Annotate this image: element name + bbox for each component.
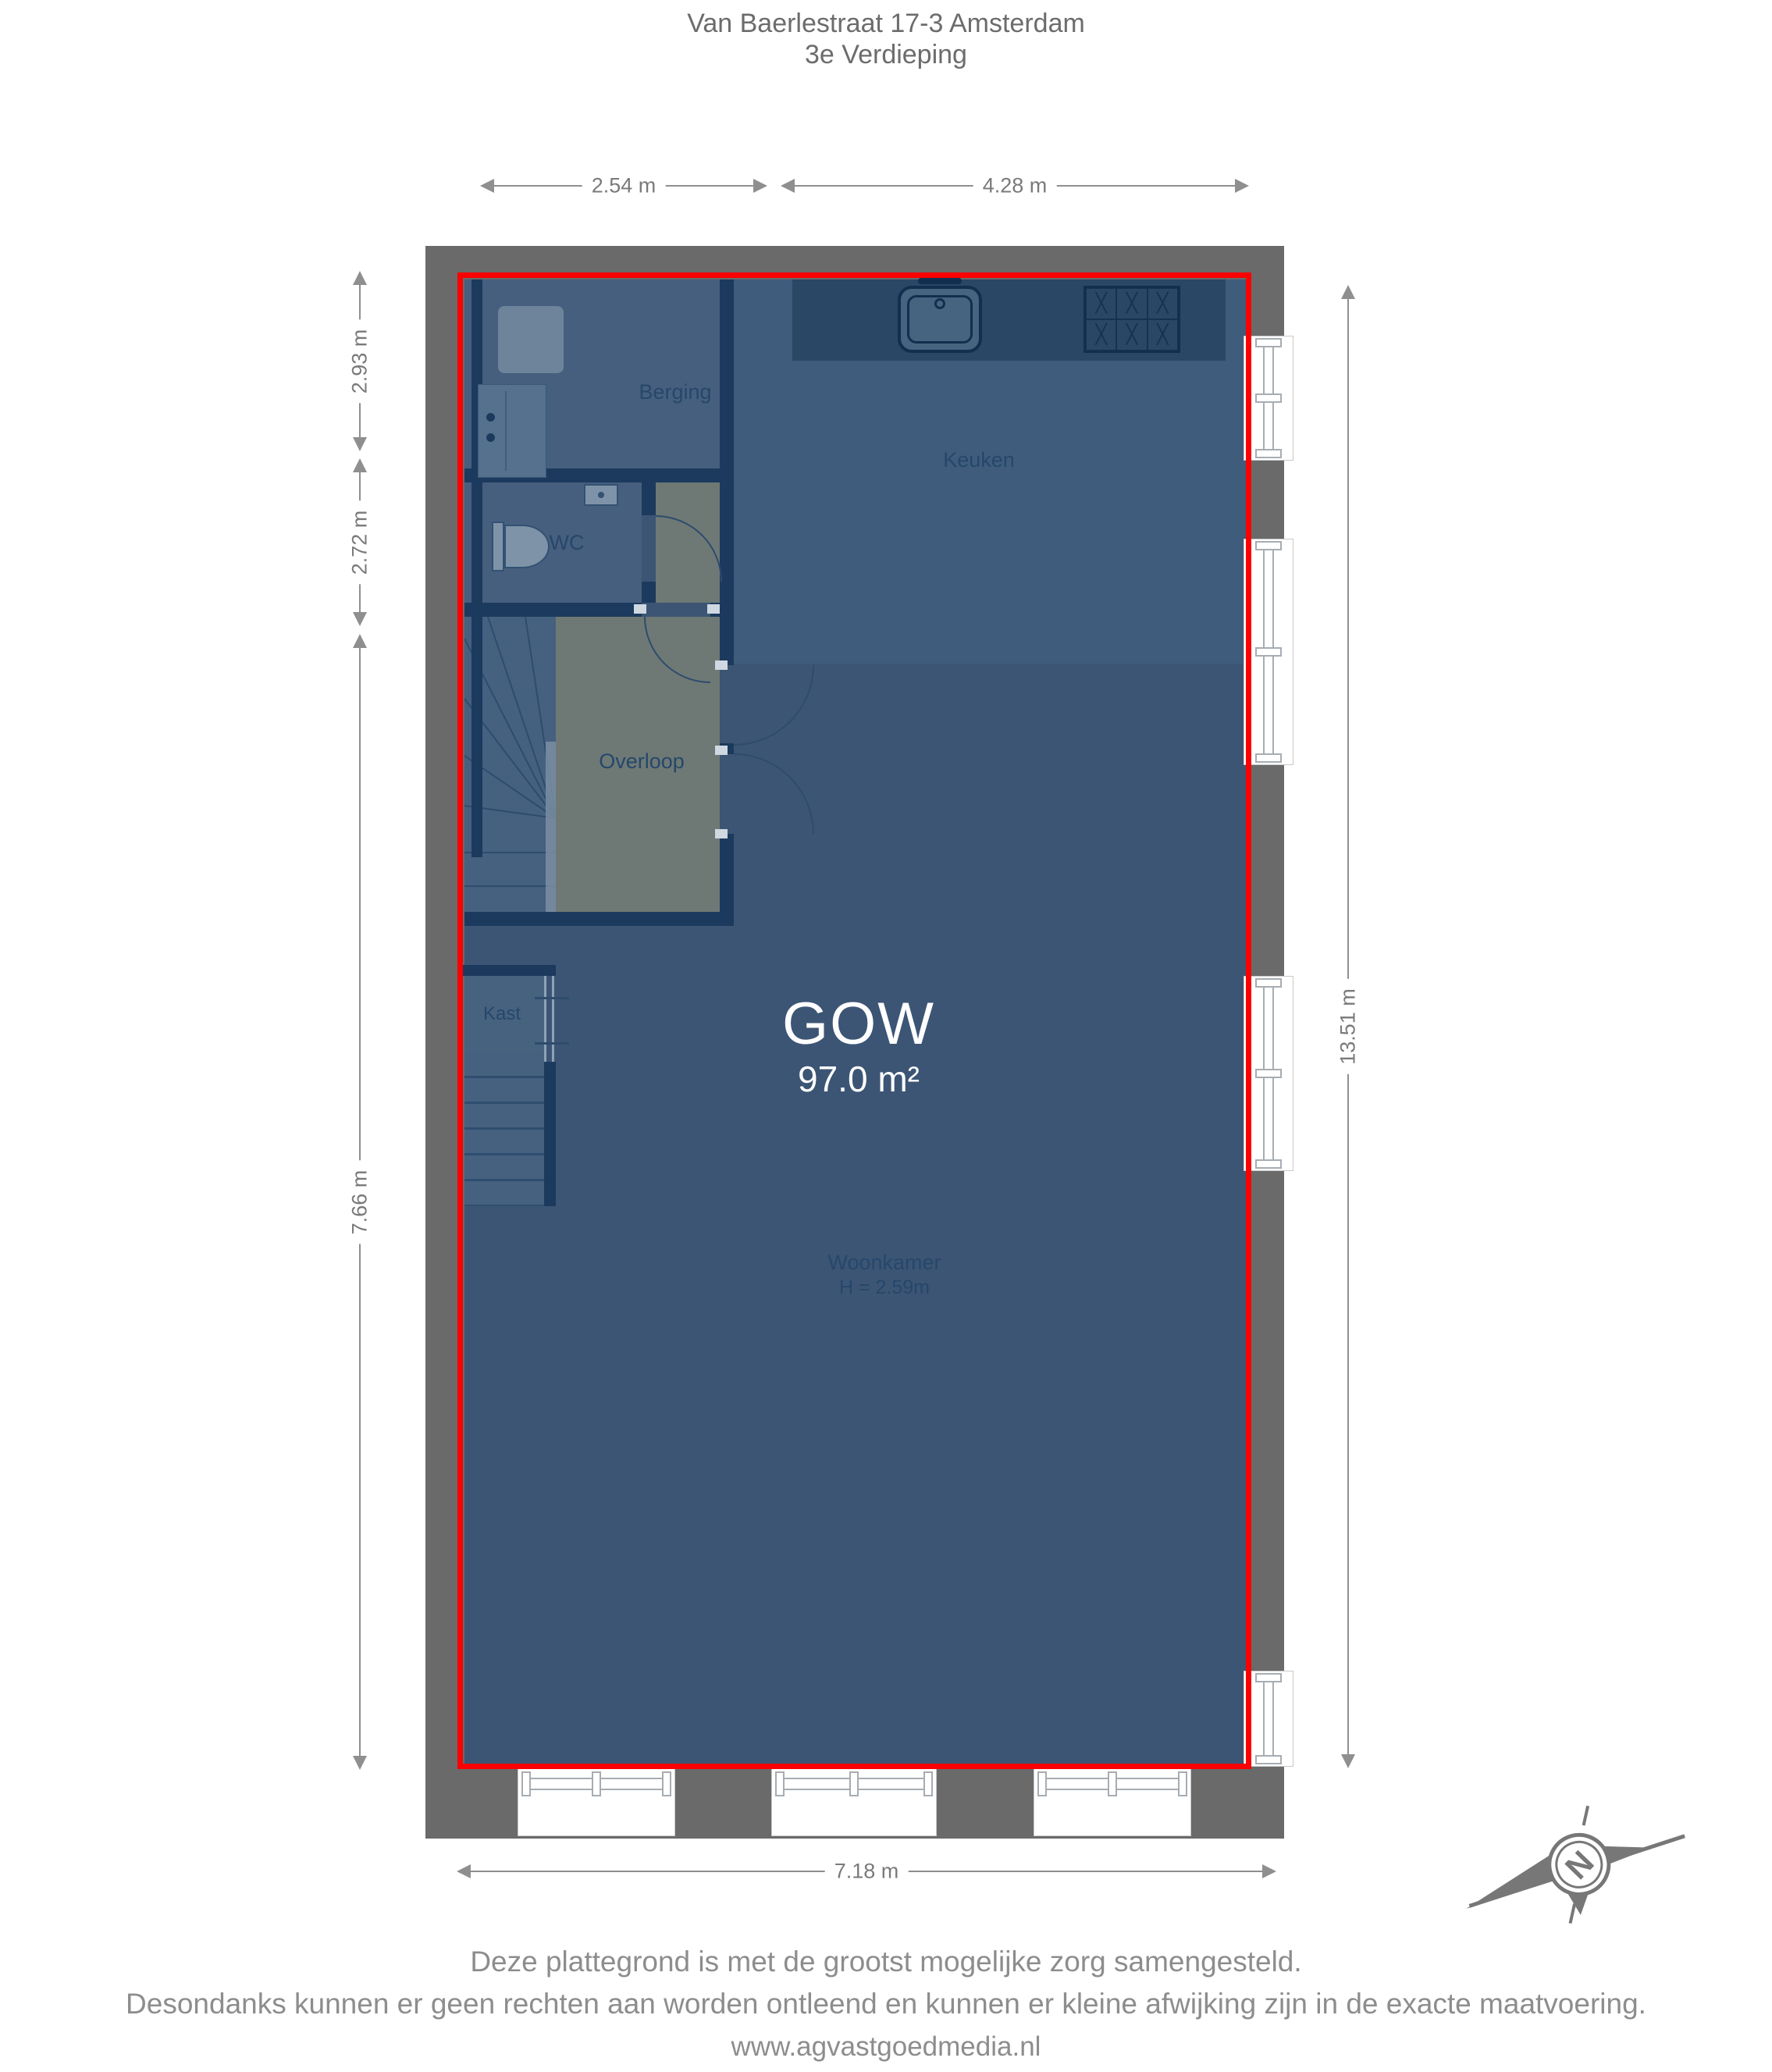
arrow-up-icon — [1341, 285, 1355, 299]
arrow-down-icon — [353, 1756, 367, 1770]
wall — [544, 1062, 556, 1206]
door-jamb — [715, 660, 728, 670]
dimension-label: 7.66 m — [347, 1160, 374, 1244]
window-frame — [1255, 1673, 1283, 1682]
washing-machine-icon — [498, 306, 564, 373]
arrow-left-icon — [457, 1864, 471, 1878]
burner-icon — [1148, 319, 1178, 351]
window-icon — [1034, 1766, 1191, 1836]
page-subtitle: 3e Verdieping — [0, 39, 1772, 70]
room-label-overloop: Overloop — [564, 749, 720, 774]
footer-disclaimer-2: Desondanks kunnen er geen rechten aan wo… — [0, 1988, 1772, 2020]
window-frame — [1037, 1771, 1047, 1796]
door-jamb — [634, 604, 646, 614]
burner-icon — [1116, 288, 1147, 319]
window-frame — [1178, 1771, 1187, 1796]
faucet-icon — [918, 278, 962, 284]
window-frame — [1255, 647, 1283, 657]
sink-icon — [584, 484, 618, 506]
window-icon — [518, 1766, 675, 1836]
burner-icon — [1086, 319, 1116, 351]
divider — [505, 391, 507, 471]
wall — [471, 279, 482, 857]
wall — [642, 582, 656, 603]
window-frame — [1255, 1755, 1283, 1764]
window-frame — [1255, 978, 1283, 988]
arrow-right-icon — [753, 179, 767, 193]
arrow-up-icon — [353, 458, 367, 472]
window-frame — [662, 1771, 671, 1796]
footer-website: www.agvastgoedmedia.nl — [0, 2031, 1772, 2063]
wall — [464, 603, 642, 617]
room-label-woonkamer: Woonkamer H = 2.59m — [806, 1249, 963, 1299]
window-frame — [1255, 393, 1283, 403]
dimension-top-keuken: 4.28 m — [781, 176, 1249, 195]
area-code: GOW — [742, 991, 976, 1057]
dimension-left-woonkamer: 7.66 m — [348, 634, 372, 1770]
kitchen-sink-icon — [898, 286, 982, 353]
burner-icon — [1086, 288, 1116, 319]
window-frame — [1108, 1771, 1117, 1796]
window-frame — [1255, 541, 1283, 550]
compass-rose-icon: N — [1464, 1803, 1698, 1936]
knob-icon — [486, 413, 495, 422]
area-size: 97.0 m² — [742, 1057, 976, 1101]
counter-icon — [478, 384, 546, 478]
window-icon — [1244, 1671, 1293, 1767]
dimension-top-berging: 2.54 m — [480, 176, 767, 195]
window-icon — [1244, 976, 1293, 1171]
kast-door-tick — [535, 1042, 569, 1045]
toilet-icon — [492, 522, 504, 571]
window-icon — [1244, 336, 1293, 461]
window-frame — [923, 1771, 933, 1796]
dimension-bottom-total: 7.18 m — [457, 1862, 1276, 1881]
door-jamb — [707, 604, 720, 614]
window-glass — [1263, 1678, 1274, 1760]
arrow-up-icon — [353, 271, 367, 285]
dimension-label: 2.72 m — [347, 500, 374, 584]
burner-icon — [1148, 288, 1178, 319]
straight-stairs-icon — [464, 1052, 544, 1206]
dimension-label: 7.18 m — [825, 1858, 909, 1885]
dimension-label: 2.54 m — [582, 173, 666, 200]
window-frame — [592, 1771, 601, 1796]
drain-icon — [934, 298, 945, 309]
arrow-down-icon — [353, 612, 367, 626]
kast-door-tick — [535, 997, 569, 999]
room-label-berging: Berging — [597, 380, 753, 404]
kast-door-track — [544, 976, 554, 1062]
room-label-kast: Kast — [463, 1003, 541, 1025]
window-icon — [1244, 539, 1293, 765]
knob-icon — [486, 433, 495, 442]
arrow-left-icon — [781, 179, 795, 193]
room-label-text: Woonkamer — [806, 1249, 963, 1276]
window-frame — [775, 1771, 785, 1796]
floorplan: Berging WC Keuken Overloop Kast GOW 97.0… — [425, 246, 1284, 1839]
dimension-label: 2.93 m — [347, 319, 374, 403]
dimension-left-berging: 2.93 m — [348, 271, 372, 451]
page-title: Van Baerlestraat 17-3 Amsterdam — [0, 8, 1772, 39]
window-frame — [1255, 1069, 1283, 1078]
window-frame — [1255, 753, 1283, 763]
arrow-right-icon — [1262, 1864, 1276, 1878]
footer-disclaimer-1: Deze plattegrond is met de grootst mogel… — [0, 1946, 1772, 1978]
arrow-left-icon — [480, 179, 494, 193]
window-frame — [521, 1771, 531, 1796]
area-badge: GOW 97.0 m² — [742, 991, 976, 1101]
window-frame — [1255, 1159, 1283, 1169]
window-icon — [771, 1766, 937, 1836]
burner-icon — [1116, 319, 1147, 351]
window-frame — [849, 1771, 859, 1796]
dimension-left-overloop: 2.72 m — [348, 458, 372, 626]
wall — [464, 912, 734, 926]
room-label-keuken: Keuken — [901, 448, 1057, 472]
wall — [642, 482, 656, 515]
drain-icon — [598, 492, 604, 498]
window-frame — [1255, 449, 1283, 458]
room-height-text: H = 2.59m — [806, 1276, 963, 1299]
arrow-right-icon — [1235, 179, 1249, 193]
arrow-down-icon — [353, 437, 367, 451]
dimension-right-total: 13.51 m — [1336, 285, 1360, 1768]
window-frame — [1255, 338, 1283, 347]
dimension-label: 13.51 m — [1335, 979, 1362, 1074]
stove-icon — [1083, 286, 1180, 353]
dimension-label: 4.28 m — [973, 173, 1057, 200]
arrow-up-icon — [353, 634, 367, 648]
room-label-wc: WC — [528, 531, 606, 555]
arrow-down-icon — [1341, 1754, 1355, 1768]
wall — [458, 965, 556, 976]
door-jamb — [715, 829, 728, 838]
